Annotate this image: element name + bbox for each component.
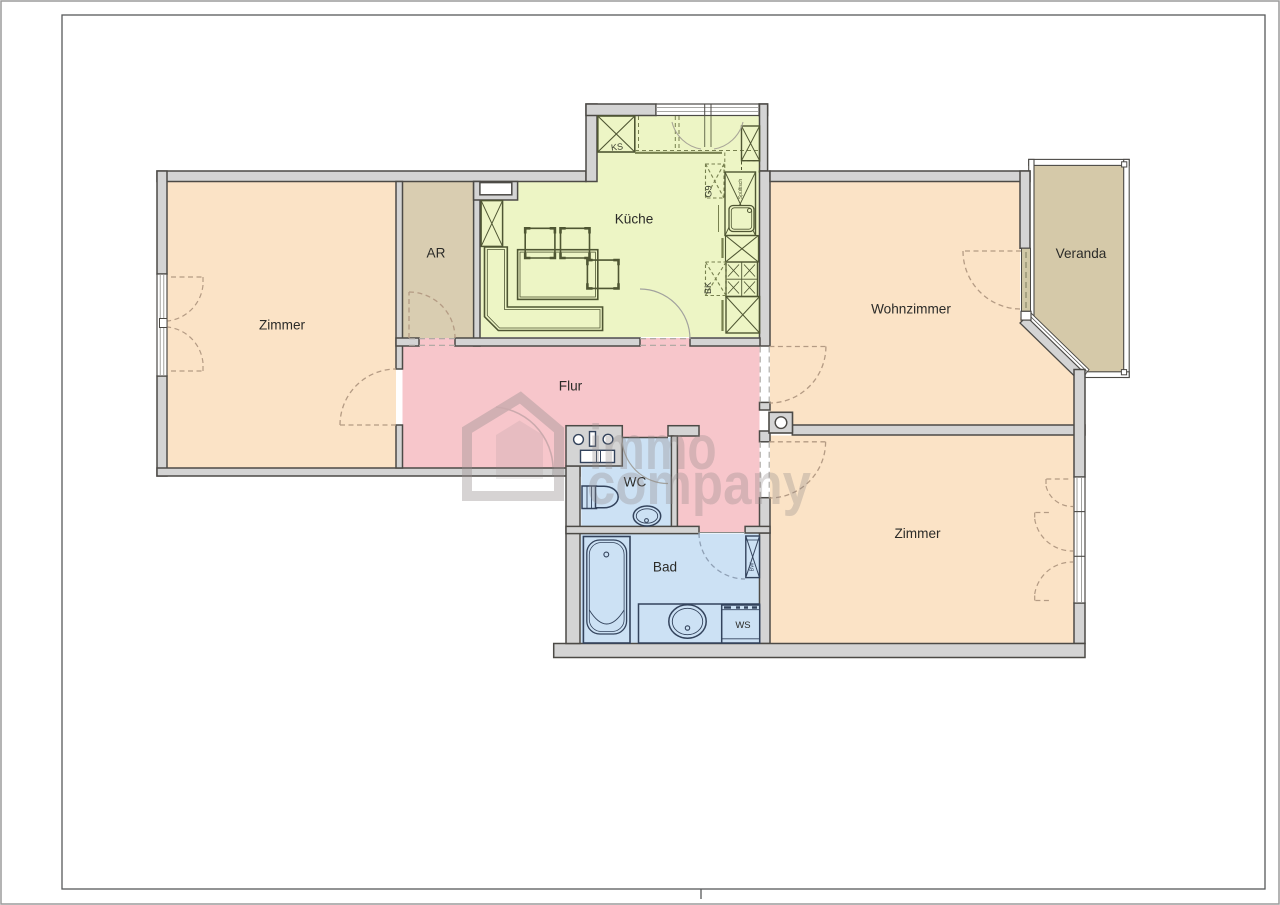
svg-text:Wohnzimmer: Wohnzimmer [871,302,951,317]
svg-text:Flur: Flur [559,379,583,394]
svg-text:WS: WS [735,620,750,631]
svg-text:G9: G9 [704,185,714,197]
svg-text:company: company [587,452,812,517]
svg-text:Spültisch: Spültisch [738,179,744,200]
svg-text:BW: BW [750,562,756,572]
svg-text:Zimmer: Zimmer [894,526,941,541]
svg-text:Küche: Küche [615,212,654,227]
svg-text:BK: BK [703,282,713,294]
svg-text:AR: AR [427,246,446,261]
svg-text:Bad: Bad [653,560,677,575]
svg-text:Veranda: Veranda [1056,246,1107,261]
svg-text:Zimmer: Zimmer [259,318,306,333]
svg-text:KS: KS [610,141,623,152]
